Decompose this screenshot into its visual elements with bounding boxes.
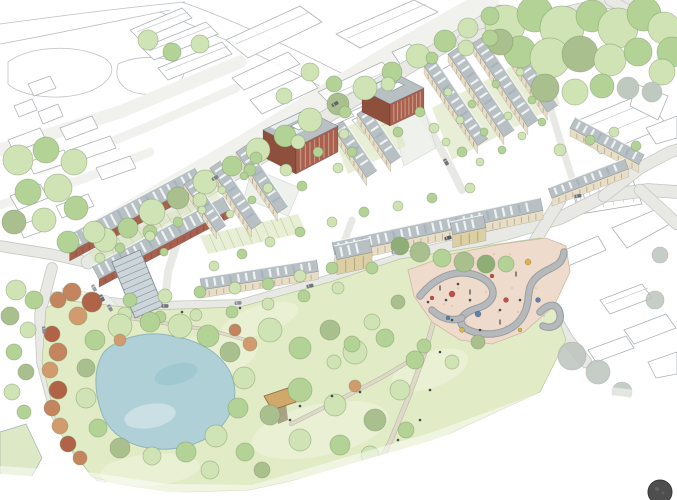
play-equipment xyxy=(460,328,465,333)
tree-canopy xyxy=(198,206,206,214)
tree-canopy xyxy=(538,118,546,126)
tree-canopy xyxy=(288,378,312,402)
solar-panel xyxy=(293,265,294,273)
tree-canopy xyxy=(194,286,206,298)
person-figure xyxy=(419,419,422,422)
tree-canopy xyxy=(50,292,66,308)
tree-canopy xyxy=(6,280,26,300)
solar-panel xyxy=(269,269,270,277)
tree-canopy xyxy=(258,318,282,342)
tree-canopy xyxy=(262,278,274,290)
tree-canopy xyxy=(95,253,105,263)
person-figure xyxy=(181,311,184,314)
tree-canopy xyxy=(393,127,403,137)
playground-speckle xyxy=(457,287,459,289)
tree-canopy xyxy=(190,309,202,321)
tree-canopy xyxy=(590,74,614,98)
tree-canopy xyxy=(518,132,526,140)
tree-canopy xyxy=(649,59,675,85)
logo-circle xyxy=(648,480,672,500)
solar-panel xyxy=(206,279,207,287)
tree-canopy xyxy=(236,443,254,461)
tree-canopy xyxy=(228,398,248,418)
tree-canopy xyxy=(1,307,19,325)
tree-canopy xyxy=(398,422,414,438)
tree-canopy xyxy=(280,164,292,176)
tree-canopy xyxy=(344,336,360,352)
tree-canopy xyxy=(327,355,341,369)
tree-canopy xyxy=(60,436,76,452)
tree-canopy xyxy=(193,170,217,194)
tree-canopy xyxy=(333,163,343,173)
play-equipment xyxy=(475,311,481,317)
tree-canopy xyxy=(139,199,165,225)
tree-canopy xyxy=(191,35,209,53)
tree-canopy xyxy=(32,208,56,232)
tree-canopy xyxy=(25,291,43,309)
tree-canopy xyxy=(123,293,137,307)
tree-canopy xyxy=(89,419,107,437)
playground-speckle xyxy=(535,287,537,289)
play-equipment xyxy=(446,316,450,320)
tree-canopy xyxy=(85,330,105,350)
play-equipment xyxy=(490,274,494,278)
logo-badge xyxy=(648,480,672,500)
person-figure xyxy=(445,299,448,302)
tree-canopy xyxy=(176,442,196,462)
tree-canopy xyxy=(320,320,340,340)
tree-canopy xyxy=(33,137,59,163)
tree-canopy xyxy=(415,107,425,117)
solar-panel xyxy=(230,275,231,283)
tree-canopy xyxy=(44,326,60,342)
solar-panel xyxy=(254,272,255,280)
tree-canopy xyxy=(237,249,247,259)
tree-canopy xyxy=(458,40,474,56)
play-structure-post xyxy=(439,286,440,291)
tree-canopy xyxy=(294,270,306,282)
tree-canopy xyxy=(330,435,350,455)
tree-canopy xyxy=(42,362,58,378)
tree-canopy xyxy=(114,334,126,346)
tree-canopy xyxy=(465,183,475,193)
person-figure xyxy=(499,309,502,312)
playground-speckle xyxy=(497,311,499,313)
tree-canopy xyxy=(366,262,378,274)
solar-panel xyxy=(238,274,239,282)
tree-canopy xyxy=(49,381,67,399)
tree-canopy xyxy=(429,123,439,133)
person-figure xyxy=(469,299,472,302)
solar-panel xyxy=(222,277,223,285)
tree-canopy xyxy=(6,344,22,360)
logo-texture xyxy=(662,492,665,495)
tree-canopy xyxy=(110,438,130,458)
tree-canopy xyxy=(233,367,255,389)
tree-canopy xyxy=(52,418,68,434)
tree-canopy xyxy=(64,196,88,220)
tree-canopy xyxy=(143,447,161,465)
tree-canopy xyxy=(260,405,280,425)
tree-canopy xyxy=(73,451,87,465)
person-figure xyxy=(299,405,302,408)
play-equipment xyxy=(536,298,541,303)
playground-speckle xyxy=(509,253,511,255)
tree-canopy xyxy=(594,44,626,76)
tree-canopy xyxy=(364,314,380,330)
tree-canopy xyxy=(347,147,357,157)
tree-canopy xyxy=(528,96,536,104)
tree-canopy xyxy=(82,292,102,312)
tree-canopy xyxy=(631,141,641,151)
tree-canopy xyxy=(209,261,219,271)
masterplan-illustration xyxy=(0,0,677,500)
tree-canopy xyxy=(498,146,506,154)
tree-canopy xyxy=(57,231,79,253)
masterplan-canvas xyxy=(0,0,677,500)
tree-canopy xyxy=(291,135,305,149)
play-equipment xyxy=(430,296,434,300)
tree-canopy xyxy=(562,79,588,105)
tree-canopy xyxy=(229,324,241,336)
tree-canopy xyxy=(445,355,459,369)
tree-canopy xyxy=(220,342,240,362)
tree-canopy xyxy=(410,242,430,262)
tree-canopy xyxy=(17,405,31,419)
tree-canopy xyxy=(393,201,403,211)
tree-canopy xyxy=(617,77,639,99)
tree-canopy xyxy=(444,88,452,96)
tree-canopy xyxy=(2,210,26,234)
tree-canopy xyxy=(289,429,311,451)
person-figure xyxy=(427,301,430,304)
playground-speckle xyxy=(485,291,487,293)
tree-canopy xyxy=(229,282,241,294)
solar-panel xyxy=(309,263,310,271)
play-equipment xyxy=(449,291,455,297)
tree-canopy xyxy=(76,388,96,408)
tree-canopy xyxy=(160,248,168,256)
playground-speckle xyxy=(517,311,519,313)
gray-tree-canopy xyxy=(652,247,668,263)
car xyxy=(234,301,241,305)
tree-canopy xyxy=(18,364,34,380)
tree-canopy xyxy=(468,100,476,108)
tree-canopy xyxy=(254,462,270,478)
tree-canopy xyxy=(585,135,595,145)
gray-tree-canopy xyxy=(646,291,664,309)
tree-canopy xyxy=(20,322,36,338)
person-figure xyxy=(359,391,362,394)
tree-canopy xyxy=(140,312,160,332)
play-structure-post xyxy=(499,320,500,325)
person-figure xyxy=(457,283,460,286)
tree-canopy xyxy=(201,461,219,479)
tree-canopy xyxy=(226,210,234,218)
tree-canopy xyxy=(243,337,257,351)
tree-canopy xyxy=(426,52,438,64)
tree-canopy xyxy=(167,187,189,209)
tree-canopy xyxy=(332,282,344,294)
person-figure xyxy=(331,395,334,398)
tree-canopy xyxy=(364,409,386,431)
tree-canopy xyxy=(168,314,192,338)
person-figure xyxy=(479,329,482,332)
tree-canopy xyxy=(324,394,346,416)
tree-canopy xyxy=(417,339,431,353)
tree-canopy xyxy=(197,325,219,347)
tree-canopy xyxy=(349,380,361,392)
tree-canopy xyxy=(313,147,323,157)
tree-canopy xyxy=(69,307,87,325)
playground-speckle xyxy=(543,315,545,317)
tree-canopy xyxy=(163,43,181,61)
tree-canopy xyxy=(276,88,292,104)
tree-canopy xyxy=(406,351,424,369)
tree-canopy xyxy=(476,158,484,166)
tree-canopy xyxy=(381,77,395,91)
person-figure xyxy=(451,319,454,322)
tree-canopy xyxy=(44,400,60,416)
tree-canopy xyxy=(492,80,500,88)
person-figure xyxy=(239,307,242,310)
tree-canopy xyxy=(471,335,485,349)
tree-canopy xyxy=(297,181,307,191)
tree-canopy xyxy=(454,252,474,272)
play-equipment xyxy=(525,259,531,265)
tree-canopy xyxy=(339,129,349,139)
tree-canopy xyxy=(458,18,478,38)
tree-canopy xyxy=(265,237,275,247)
tree-canopy xyxy=(15,179,41,205)
playground-speckle xyxy=(465,321,467,323)
tree-canopy xyxy=(262,298,274,310)
tree-canopy xyxy=(226,306,238,318)
tree-canopy xyxy=(145,231,155,241)
tree-canopy xyxy=(158,289,172,303)
solar-panel xyxy=(277,268,278,276)
tree-canopy xyxy=(359,207,369,217)
tree-canopy xyxy=(456,116,464,124)
tree-canopy xyxy=(624,38,652,66)
tree-canopy xyxy=(457,147,467,157)
solar-panel xyxy=(214,278,215,286)
tree-canopy xyxy=(339,106,351,118)
tree-canopy xyxy=(295,227,305,237)
tree-canopy xyxy=(433,249,451,267)
play-structure-post xyxy=(515,272,516,277)
tree-canopy xyxy=(301,63,319,81)
tree-canopy xyxy=(218,186,226,194)
tree-canopy xyxy=(477,255,495,273)
person-figure xyxy=(519,299,522,302)
tree-canopy xyxy=(248,196,256,204)
tree-canopy xyxy=(250,152,262,164)
tree-canopy xyxy=(480,128,488,136)
tree-canopy xyxy=(3,145,33,175)
tree-canopy xyxy=(504,112,512,120)
tree-canopy xyxy=(49,343,67,361)
tree-canopy xyxy=(205,425,227,447)
tree-canopy xyxy=(326,76,342,92)
tree-canopy xyxy=(61,149,87,175)
play-equipment xyxy=(518,328,522,332)
tree-canopy xyxy=(609,127,619,137)
tree-canopy xyxy=(327,217,337,227)
solar-panel xyxy=(246,273,247,281)
tree-canopy xyxy=(289,337,311,359)
tree-canopy xyxy=(434,30,456,52)
tree-canopy xyxy=(353,76,377,100)
playground-speckle xyxy=(451,305,453,307)
tree-canopy xyxy=(240,172,248,180)
gray-tree-canopy xyxy=(558,342,586,370)
tree-canopy xyxy=(390,380,410,400)
tree-canopy xyxy=(554,144,566,156)
tree-canopy xyxy=(482,30,498,46)
tree-canopy xyxy=(326,262,338,274)
tree-canopy xyxy=(173,217,183,227)
person-figure xyxy=(289,419,292,422)
play-structure-post xyxy=(469,290,470,295)
tree-canopy xyxy=(442,138,450,146)
person-figure xyxy=(397,439,400,442)
gray-tree-canopy xyxy=(586,360,610,384)
solar-panel xyxy=(262,270,263,278)
tree-canopy xyxy=(391,295,405,309)
tree-canopy xyxy=(562,36,598,72)
logo-texture xyxy=(655,487,659,491)
tree-canopy xyxy=(115,243,125,253)
playground-speckle xyxy=(443,303,445,305)
tree-canopy xyxy=(138,30,158,50)
person-figure xyxy=(429,389,432,392)
tree-canopy xyxy=(376,329,394,347)
person-figure xyxy=(439,351,442,354)
playground-speckle xyxy=(493,253,495,255)
tree-canopy xyxy=(298,290,310,302)
tree-canopy xyxy=(4,384,20,400)
tree-canopy xyxy=(498,256,514,272)
car-body xyxy=(234,301,241,305)
tree-canopy xyxy=(263,183,273,193)
tree-canopy xyxy=(77,359,95,377)
playground-speckle xyxy=(469,301,471,303)
car-body xyxy=(161,304,168,308)
tree-canopy xyxy=(118,218,138,238)
tree-canopy xyxy=(193,193,207,207)
tree-canopy xyxy=(516,68,524,76)
car xyxy=(161,304,168,308)
solar-panel xyxy=(285,267,286,275)
tree-canopy xyxy=(481,7,499,25)
tree-canopy xyxy=(83,221,105,243)
tree-canopy xyxy=(222,156,242,176)
tree-canopy xyxy=(642,82,662,102)
play-equipment xyxy=(504,298,509,303)
playground-speckle xyxy=(511,287,513,289)
tree-canopy xyxy=(44,174,72,202)
tree-canopy xyxy=(427,193,437,203)
tree-canopy xyxy=(298,108,322,132)
